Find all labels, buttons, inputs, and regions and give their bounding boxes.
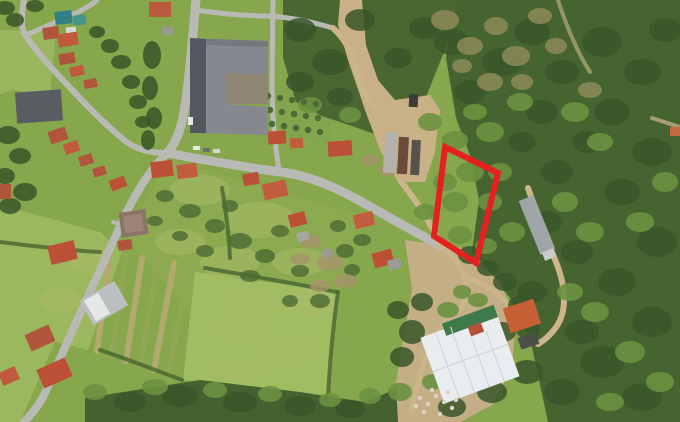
hip-roof-house [118, 209, 148, 238]
apartment-building [190, 38, 268, 135]
aerial-imagery [0, 0, 680, 422]
satellite-map-view[interactable] [0, 0, 680, 422]
